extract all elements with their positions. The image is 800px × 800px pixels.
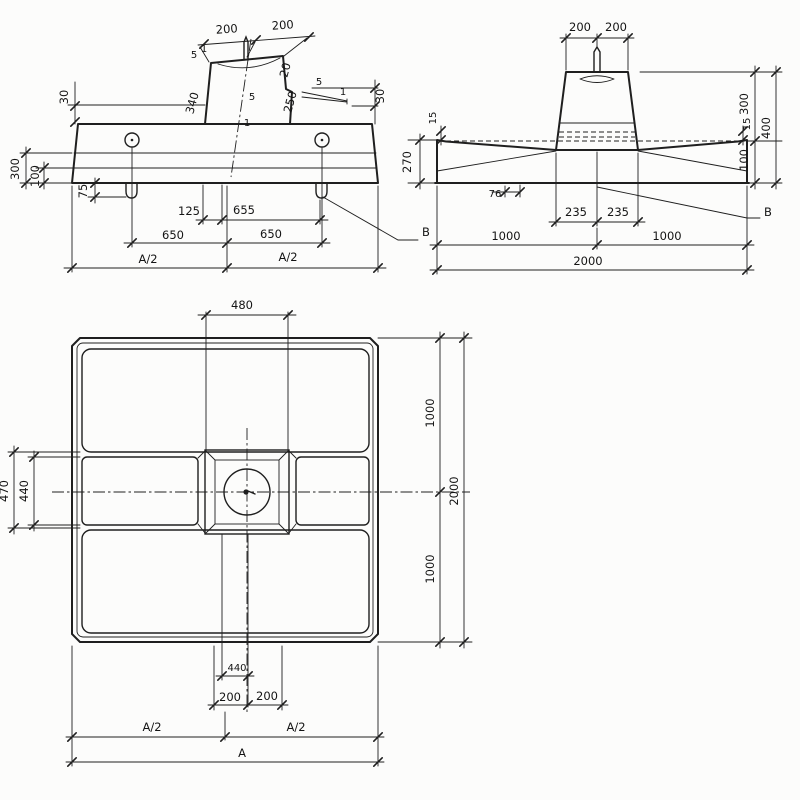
slope-label: 5 bbox=[249, 92, 255, 103]
dim-label: 15 bbox=[742, 118, 753, 131]
slope-label: 1 bbox=[201, 44, 207, 55]
plan-top-panel bbox=[82, 349, 369, 452]
dim-label: 200 bbox=[271, 17, 294, 32]
front-lifting-loop-right bbox=[316, 183, 327, 198]
front-view: 200 200 30 30 340 250 20 5 1 5 1 5 1 300… bbox=[8, 17, 430, 272]
front-leader-line bbox=[323, 197, 418, 240]
dim-label: 200 bbox=[215, 21, 238, 36]
dim-label: A/2 bbox=[138, 252, 157, 266]
dim-label: 2000 bbox=[573, 254, 602, 268]
dim-label: 270 bbox=[400, 151, 414, 173]
dim-label: 340 bbox=[183, 91, 202, 116]
dim-label: A/2 bbox=[142, 720, 161, 734]
dim-label: 100 bbox=[737, 149, 751, 171]
dim-label: A bbox=[238, 746, 246, 760]
dim-label: 100 bbox=[28, 165, 42, 187]
plan-band-left bbox=[82, 457, 198, 525]
dim-label: 1000 bbox=[423, 398, 437, 427]
dim-label: A/2 bbox=[278, 250, 297, 264]
dim-label: 650 bbox=[162, 228, 184, 242]
dim-label: 250 bbox=[281, 90, 300, 115]
foundation-drawing: 200 200 30 30 340 250 20 5 1 5 1 5 1 300… bbox=[0, 0, 800, 800]
dim-label: 440 bbox=[227, 663, 246, 674]
leader-label: B bbox=[764, 205, 772, 219]
dim-label: 30 bbox=[373, 89, 387, 104]
plan-bottom-panel bbox=[82, 530, 369, 633]
dim-label: 235 bbox=[565, 205, 587, 219]
dim-label: 200 bbox=[256, 689, 278, 703]
dim-label: 30 bbox=[57, 90, 71, 105]
plan-outer-outline bbox=[72, 338, 378, 642]
side-anchor-pin bbox=[594, 47, 600, 72]
dim-label: 480 bbox=[231, 298, 253, 312]
plan-band-right bbox=[296, 457, 369, 525]
dim-label: 440 bbox=[17, 480, 31, 502]
dim-label: 235 bbox=[607, 205, 629, 219]
dim-label: 75 bbox=[76, 184, 90, 199]
plan-inner-border bbox=[77, 343, 373, 637]
drawing-sheet: 200 200 30 30 340 250 20 5 1 5 1 5 1 300… bbox=[0, 0, 800, 800]
dim-label: 300 bbox=[737, 93, 751, 115]
dim-label: 400 bbox=[759, 117, 773, 139]
dim-label: 2000 bbox=[447, 476, 461, 505]
dim-label: A/2 bbox=[286, 720, 305, 734]
side-pedestal-outline bbox=[556, 72, 638, 150]
leader-label: B bbox=[422, 225, 430, 239]
side-view: 200 200 15 15 270 300 100 400 76 235 235… bbox=[400, 20, 782, 274]
dim-label: 200 bbox=[219, 690, 241, 704]
dim-label: 15 bbox=[428, 112, 439, 125]
slope-label: 5 bbox=[316, 77, 322, 88]
dim-label: 200 bbox=[569, 20, 591, 34]
dim-label: 125 bbox=[178, 204, 200, 218]
dim-label: 655 bbox=[233, 203, 255, 217]
dim-label: 200 bbox=[605, 20, 627, 34]
dim-label: 300 bbox=[8, 158, 22, 180]
dim-label: 1000 bbox=[491, 229, 520, 243]
side-slab-outline bbox=[435, 140, 749, 183]
slope-label: 5 bbox=[191, 50, 197, 61]
front-slab-outline bbox=[72, 124, 378, 183]
slope-label: 1 bbox=[244, 118, 250, 129]
dim-label: 650 bbox=[260, 227, 282, 241]
plan-view: 480 470 440 1000 1000 2000 440 200 200 A… bbox=[0, 298, 472, 766]
dim-label: 1000 bbox=[423, 554, 437, 583]
dim-label: 1000 bbox=[652, 229, 681, 243]
front-lifting-loop-left bbox=[126, 183, 137, 198]
dim-label: 470 bbox=[0, 480, 11, 502]
slope-label: 1 bbox=[340, 87, 346, 98]
dim-label: 76 bbox=[489, 189, 502, 200]
dim-label: 20 bbox=[276, 61, 293, 79]
